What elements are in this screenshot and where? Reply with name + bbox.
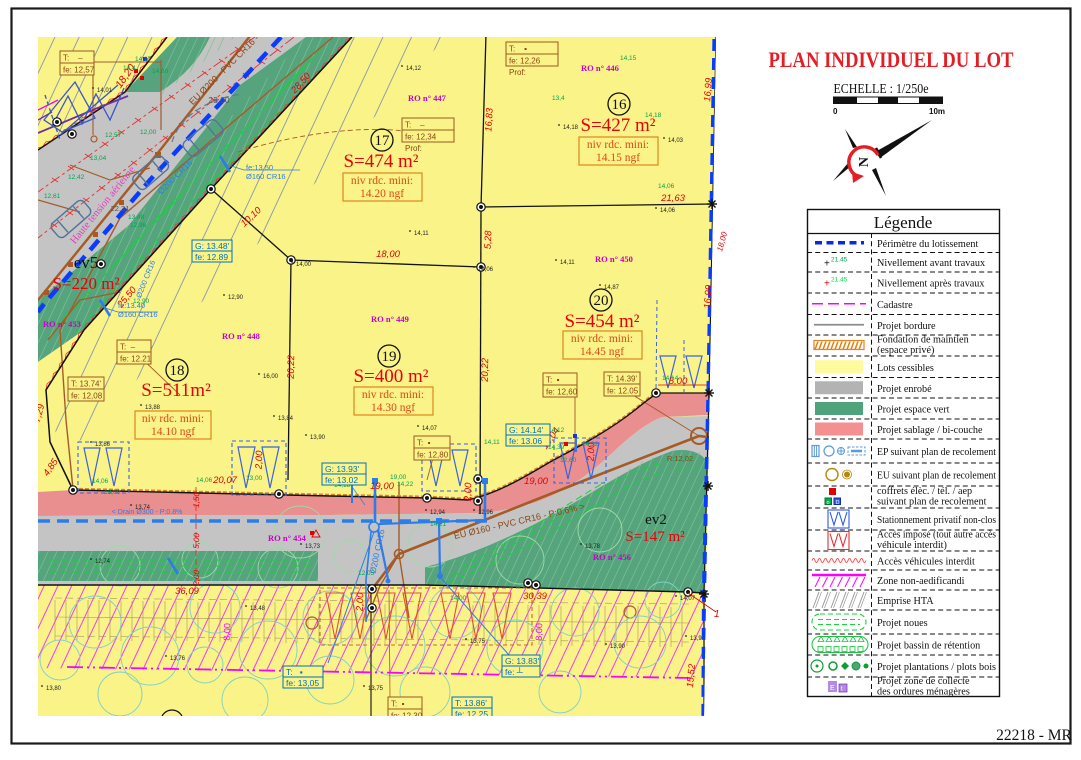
svg-text:fe: 13,05: fe: 13,05: [286, 678, 319, 688]
svg-text:RO n° 450: RO n° 450: [595, 254, 633, 264]
svg-text:+: +: [824, 279, 830, 290]
svg-text:14,11: 14,11: [484, 439, 500, 446]
svg-text:Ø160 CR16: Ø160 CR16: [246, 172, 286, 181]
svg-text:2,00: 2,00: [463, 482, 475, 503]
svg-text:Lots cessibles: Lots cessibles: [877, 363, 934, 374]
svg-text:R:12,02: R:12,02: [667, 454, 693, 463]
svg-text:14,06: 14,06: [92, 478, 109, 485]
svg-text:T: 14.39': T: 14.39': [607, 375, 637, 384]
svg-text:20,22: 20,22: [286, 354, 297, 380]
svg-text:+: +: [824, 258, 830, 269]
svg-text:des ordures ménagères: des ordures ménagères: [877, 687, 970, 698]
svg-text:Nivellement avant travaux: Nivellement avant travaux: [877, 258, 985, 269]
svg-text:Projet zone de collecte: Projet zone de collecte: [877, 676, 970, 687]
svg-text:13,84: 13,84: [278, 416, 294, 422]
svg-text:T: 13.86': T: 13.86': [455, 698, 487, 708]
svg-text:12,61: 12,61: [44, 193, 61, 200]
svg-text:12,96: 12,96: [130, 222, 147, 229]
svg-text:14,22: 14,22: [397, 481, 414, 488]
svg-text:13,80: 13,80: [46, 686, 62, 692]
svg-text:5,28: 5,28: [483, 230, 495, 250]
svg-text:13,00: 13,00: [246, 475, 263, 482]
svg-text:S=220 m²: S=220 m²: [52, 274, 119, 293]
svg-text:13,90: 13,90: [610, 644, 626, 650]
svg-text:13,4: 13,4: [552, 95, 565, 102]
svg-text:20: 20: [594, 293, 609, 309]
svg-text:19,00: 19,00: [370, 481, 394, 492]
svg-text:G: 13.48': G: 13.48': [195, 241, 230, 251]
svg-text:S=400 m²: S=400 m²: [353, 366, 428, 387]
svg-text:13,86: 13,86: [95, 442, 111, 448]
svg-text:Ø160 CR16: Ø160 CR16: [118, 310, 158, 319]
svg-text:14.10 ngf: 14.10 ngf: [151, 426, 195, 438]
svg-text:17: 17: [375, 133, 391, 149]
svg-text:niv rdc. mini:: niv rdc. mini:: [351, 175, 413, 187]
svg-text:21.45: 21.45: [831, 277, 848, 284]
svg-text:Projet plantations / plots boi: Projet plantations / plots bois: [877, 662, 996, 673]
svg-text:14,11: 14,11: [560, 260, 575, 266]
svg-text:13,90: 13,90: [310, 435, 326, 441]
svg-text:14.20 ngf: 14.20 ngf: [360, 188, 404, 200]
svg-text:fe:13.40: fe:13.40: [118, 301, 145, 310]
svg-text:14,14: 14,14: [662, 375, 679, 382]
svg-text:14,21: 14,21: [430, 521, 447, 528]
svg-text:15,52: 15,52: [685, 663, 698, 688]
svg-text:16,83: 16,83: [483, 107, 495, 132]
svg-text:Périmètre du lotissement: Périmètre du lotissement: [877, 239, 978, 250]
svg-text:13,48: 13,48: [250, 606, 266, 612]
svg-text:Légende: Légende: [874, 213, 933, 232]
svg-text:suivant plan de recolement: suivant plan de recolement: [877, 497, 987, 508]
svg-text:22218 - MR: 22218 - MR: [996, 727, 1072, 744]
svg-text:fe: 12,57: fe: 12,57: [63, 66, 95, 75]
svg-text:14,06: 14,06: [196, 477, 213, 484]
svg-text:19,00: 19,00: [524, 476, 548, 487]
svg-text:RO n° 456: RO n° 456: [593, 552, 631, 562]
svg-text:12,90: 12,90: [228, 295, 244, 301]
svg-text:10m: 10m: [929, 107, 945, 116]
svg-text:fe:13.50: fe:13.50: [246, 163, 273, 172]
svg-text:14,00: 14,00: [296, 262, 312, 268]
svg-text:2,00: 2,00: [355, 592, 367, 613]
svg-text:fe: ┴: fe: ┴: [505, 667, 524, 677]
svg-text:Emprise HTA: Emprise HTA: [877, 596, 934, 607]
svg-text:fe: 12.21: fe: 12.21: [120, 355, 152, 364]
svg-text:véhicule interdit): véhicule interdit): [877, 540, 947, 551]
svg-text:18: 18: [170, 363, 185, 379]
svg-text:Cadastre: Cadastre: [877, 300, 913, 311]
svg-text:16,99: 16,99: [702, 77, 715, 102]
svg-text:16: 16: [612, 97, 628, 113]
svg-text:30,39: 30,39: [523, 591, 547, 602]
svg-text:13,78: 13,78: [585, 544, 601, 550]
svg-text:fe: 12,26: fe: 12,26: [509, 57, 541, 66]
svg-text:14,15: 14,15: [620, 55, 637, 62]
svg-text:PLAN INDIVIDUEL DU LOT: PLAN INDIVIDUEL DU LOT: [769, 47, 1014, 72]
svg-text:E: E: [830, 685, 835, 692]
svg-text:13,00: 13,00: [104, 489, 121, 496]
svg-text:14,03: 14,03: [668, 138, 684, 144]
svg-text:Accès véhicules interdit: Accès véhicules interdit: [877, 557, 975, 568]
svg-text:13,9: 13,9: [690, 636, 702, 642]
svg-text:fe: 12.05: fe: 12.05: [607, 387, 639, 396]
svg-text:T: ▪: T: ▪: [509, 45, 527, 54]
svg-text:14,11: 14,11: [414, 231, 429, 237]
svg-text:EP suivant plan de recolement: EP suivant plan de recolement: [877, 447, 996, 458]
svg-text:T: 13.74': T: 13.74': [71, 380, 101, 389]
svg-text:G: 14.14': G: 14.14': [509, 425, 544, 435]
svg-text:S=147 m²: S=147 m²: [625, 529, 685, 545]
svg-text:Zone non-aedificandi: Zone non-aedificandi: [877, 576, 965, 587]
svg-text:niv rdc. mini:: niv rdc. mini:: [362, 389, 424, 401]
svg-text:Projet sablage / bi-couche: Projet sablage / bi-couche: [877, 425, 983, 436]
svg-text:fe: 12.89: fe: 12.89: [195, 252, 228, 262]
svg-text:14,87: 14,87: [604, 285, 620, 291]
svg-text:S=511m²: S=511m²: [141, 380, 211, 401]
svg-text:14.15 ngf: 14.15 ngf: [596, 152, 640, 164]
svg-text:23,00: 23,00: [208, 95, 230, 105]
svg-text:(espace privé): (espace privé): [877, 345, 934, 356]
svg-text:13,48: 13,48: [128, 214, 145, 221]
svg-text:S=474 m²: S=474 m²: [343, 151, 418, 172]
svg-text:14,60: 14,60: [152, 68, 169, 75]
svg-text:14,06: 14,06: [658, 183, 675, 190]
svg-text:21,63: 21,63: [660, 193, 685, 204]
svg-text:RO n° 449: RO n° 449: [371, 314, 409, 324]
svg-text:12,57: 12,57: [105, 132, 122, 139]
svg-text:16,00: 16,00: [263, 374, 279, 380]
svg-text:Projet espace vert: Projet espace vert: [877, 405, 950, 416]
svg-text:N: N: [857, 157, 872, 167]
svg-text:36,09: 36,09: [175, 586, 199, 597]
svg-text:12,94: 12,94: [430, 510, 446, 516]
svg-text:14,06: 14,06: [660, 208, 676, 214]
svg-text:T: ▪: T: ▪: [417, 439, 431, 448]
svg-text:T: ▪: T: ▪: [286, 667, 303, 677]
svg-text:14,32: 14,32: [582, 441, 599, 448]
svg-text:D: D: [836, 500, 840, 506]
svg-text:RO n° 454: RO n° 454: [268, 533, 307, 543]
svg-text:coffrets élèc. / tél. / aep: coffrets élèc. / tél. / aep: [877, 486, 972, 497]
svg-text:14,4: 14,4: [123, 65, 136, 72]
svg-text:RO n° 448: RO n° 448: [222, 331, 260, 341]
svg-text:12,96: 12,96: [478, 510, 494, 516]
svg-text:RO n° 446: RO n° 446: [581, 63, 619, 73]
svg-text:20,07: 20,07: [212, 475, 237, 486]
svg-text:ev5: ev5: [74, 253, 99, 272]
svg-text:14.45 ngf: 14.45 ngf: [580, 346, 624, 358]
svg-text:5,00: 5,00: [192, 532, 202, 548]
svg-text:Stationnement privatif non-clo: Stationnement privatif non-clos: [877, 515, 996, 526]
svg-text:14,18: 14,18: [563, 125, 579, 131]
svg-text:ECHELLE : 1/250e: ECHELLE : 1/250e: [834, 82, 929, 97]
svg-text:fe: 13.02: fe: 13.02: [325, 475, 358, 485]
svg-text:20,22: 20,22: [480, 357, 491, 383]
svg-text:12,60: 12,60: [560, 457, 577, 464]
svg-text:Prof:: Prof:: [405, 144, 422, 153]
svg-text:21.45: 21.45: [831, 256, 848, 263]
svg-text:14.30 ngf: 14.30 ngf: [371, 402, 415, 414]
svg-text:12,42: 12,42: [68, 174, 85, 181]
svg-text:niv rdc. mini:: niv rdc. mini:: [142, 413, 204, 425]
svg-text:Fondation de maintien: Fondation de maintien: [877, 335, 969, 346]
svg-text:13,75: 13,75: [470, 639, 486, 645]
svg-text:14,06: 14,06: [478, 267, 494, 273]
svg-text:2,00: 2,00: [254, 450, 266, 471]
svg-text:fe: 12,34: fe: 12,34: [405, 133, 437, 142]
svg-text:13,76: 13,76: [170, 656, 186, 662]
svg-text:niv rdc. mini:: niv rdc. mini:: [571, 333, 633, 345]
svg-text:niv rdc. mini:: niv rdc. mini:: [587, 139, 649, 151]
svg-text:19,00: 19,00: [390, 474, 407, 481]
svg-text:14,17: 14,17: [135, 56, 152, 63]
svg-text:14,07: 14,07: [422, 426, 438, 432]
svg-text:19: 19: [382, 349, 397, 365]
svg-text:12,00: 12,00: [140, 129, 157, 136]
svg-text:ev2: ev2: [645, 512, 667, 528]
svg-text:T: ▪: T: ▪: [391, 700, 405, 709]
svg-text:13,75: 13,75: [368, 686, 384, 692]
svg-text:14,00: 14,00: [450, 595, 467, 602]
svg-text:Prof:: Prof:: [509, 68, 526, 77]
svg-text:1,50: 1,50: [192, 491, 202, 507]
svg-text:13,88: 13,88: [145, 405, 161, 411]
svg-text:18,00: 18,00: [376, 249, 400, 260]
svg-text:G: 13.83': G: 13.83': [505, 656, 540, 666]
svg-text:1: 1: [714, 609, 720, 620]
svg-text:Projet bordure: Projet bordure: [877, 321, 936, 332]
svg-text:14,01: 14,01: [97, 88, 113, 94]
svg-text:EU suivant plan de recolement: EU suivant plan de recolement: [877, 471, 996, 482]
svg-text:22,31: 22,31: [111, 204, 130, 213]
svg-text:8,00: 8,00: [534, 623, 545, 641]
svg-text:T: –: T: –: [63, 54, 83, 63]
svg-text:14,18: 14,18: [645, 112, 662, 119]
svg-text:8,00: 8,00: [222, 623, 233, 641]
svg-text:G: 13.93': G: 13.93': [325, 464, 360, 474]
svg-text:13,73: 13,73: [305, 544, 321, 550]
svg-text:Accès imposé (tout autre accès: Accès imposé (tout autre accès: [877, 530, 996, 541]
svg-text:0: 0: [833, 107, 838, 116]
svg-text:12,74: 12,74: [95, 559, 111, 565]
svg-text:13,74: 13,74: [135, 505, 151, 511]
svg-text:fe: 13.06: fe: 13.06: [509, 436, 542, 446]
svg-text:S=454 m²: S=454 m²: [564, 311, 639, 332]
svg-text:Projet noues: Projet noues: [877, 618, 928, 629]
svg-text:Projet enrobé: Projet enrobé: [877, 384, 932, 395]
svg-text:14,12: 14,12: [406, 66, 422, 72]
svg-text:13,04: 13,04: [90, 155, 107, 162]
svg-text:fe: 12,08: fe: 12,08: [71, 392, 103, 401]
svg-text:Nivellement après travaux: Nivellement après travaux: [877, 279, 985, 290]
svg-text:fe: 12,80: fe: 12,80: [417, 451, 449, 460]
svg-text:T: –: T: –: [120, 343, 136, 352]
svg-text:o: o: [827, 500, 830, 506]
svg-text:T: ▪: T: ▪: [546, 376, 560, 385]
svg-text:T: –: T: –: [405, 121, 425, 130]
svg-text:12,05: 12,05: [358, 570, 375, 577]
svg-text:fe: 12,60: fe: 12,60: [546, 388, 578, 397]
svg-text:RO n° 453: RO n° 453: [43, 319, 81, 329]
svg-text:2,00: 2,00: [192, 569, 202, 586]
svg-text:RO n° 447: RO n° 447: [408, 93, 447, 103]
svg-text:Projet bassin de rétention: Projet bassin de rétention: [877, 641, 980, 652]
